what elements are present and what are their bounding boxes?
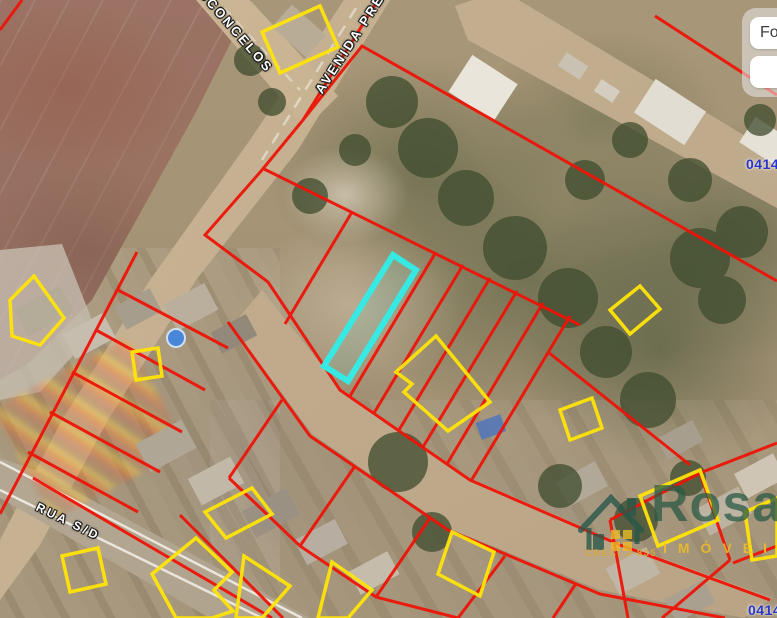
watermark-brand: Rosa [651,474,777,534]
map-watermark: Rosa IMÓVEIS CRECI J-835 [577,488,777,574]
panel-button-label: Fo [760,24,777,42]
watermark-creci: CRECI J-835 [585,548,657,559]
parcel-number-right: 0414 [746,156,777,172]
swimming-pool [167,329,185,347]
map-canvas[interactable]: VASCONCELOS AVENIDA PRESIDENTE RUA S/D 0… [0,0,777,618]
panel-button-bottom[interactable] [750,56,777,88]
watermark-imoveis: IMÓVEIS [663,540,777,556]
floating-panel: Fo [742,8,777,97]
panel-button-top[interactable]: Fo [750,17,777,49]
parcel-number-bottom: 04145 [748,602,777,618]
